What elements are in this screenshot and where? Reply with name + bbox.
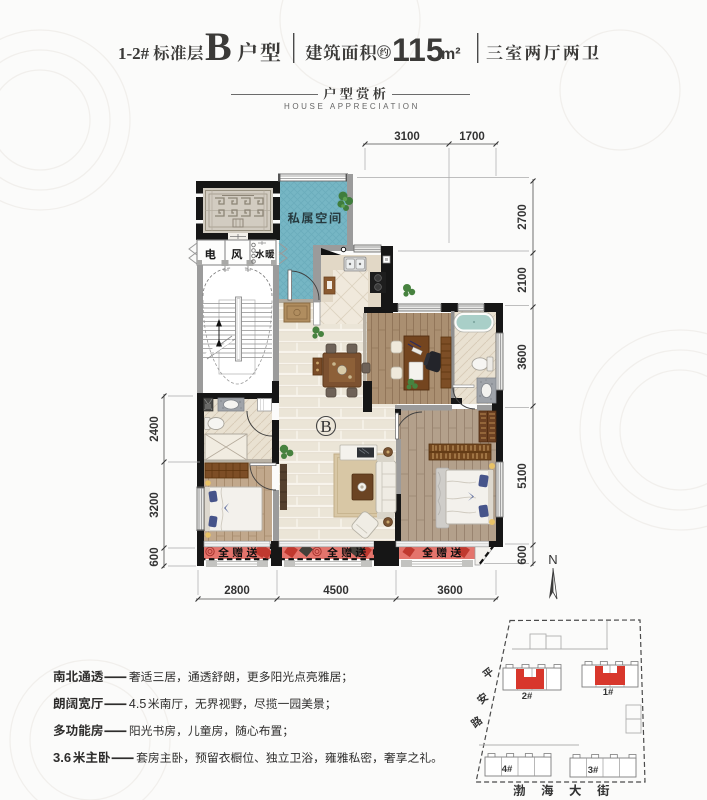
svg-text:3100: 3100	[394, 131, 420, 143]
svg-text:4500: 4500	[323, 585, 349, 597]
svg-text:3600: 3600	[517, 344, 529, 370]
svg-text:2100: 2100	[517, 267, 529, 293]
svg-text:115: 115	[392, 32, 444, 68]
svg-text:2700: 2700	[517, 204, 529, 230]
svg-text:1-2#: 1-2#	[118, 44, 150, 63]
svg-text:5100: 5100	[517, 463, 529, 489]
svg-text:B: B	[320, 417, 331, 436]
svg-text:2400: 2400	[149, 416, 161, 442]
svg-text:m²: m²	[441, 46, 461, 63]
svg-text:4#: 4#	[502, 764, 513, 775]
svg-text:1700: 1700	[459, 131, 485, 143]
svg-text:2800: 2800	[224, 585, 250, 597]
svg-text:3200: 3200	[149, 492, 161, 518]
svg-text:B: B	[205, 24, 232, 69]
svg-text:2#: 2#	[522, 691, 533, 702]
svg-text:HOUSE APPRECIATION: HOUSE APPRECIATION	[284, 102, 420, 111]
svg-text:3#: 3#	[588, 765, 599, 776]
svg-text:600: 600	[517, 545, 529, 564]
svg-text:3600: 3600	[437, 585, 463, 597]
svg-text:600: 600	[149, 547, 161, 566]
svg-text:1#: 1#	[603, 687, 614, 698]
svg-text:N: N	[548, 552, 557, 567]
svg-text:3.6: 3.6	[53, 750, 71, 765]
svg-text:4.5: 4.5	[129, 697, 146, 711]
